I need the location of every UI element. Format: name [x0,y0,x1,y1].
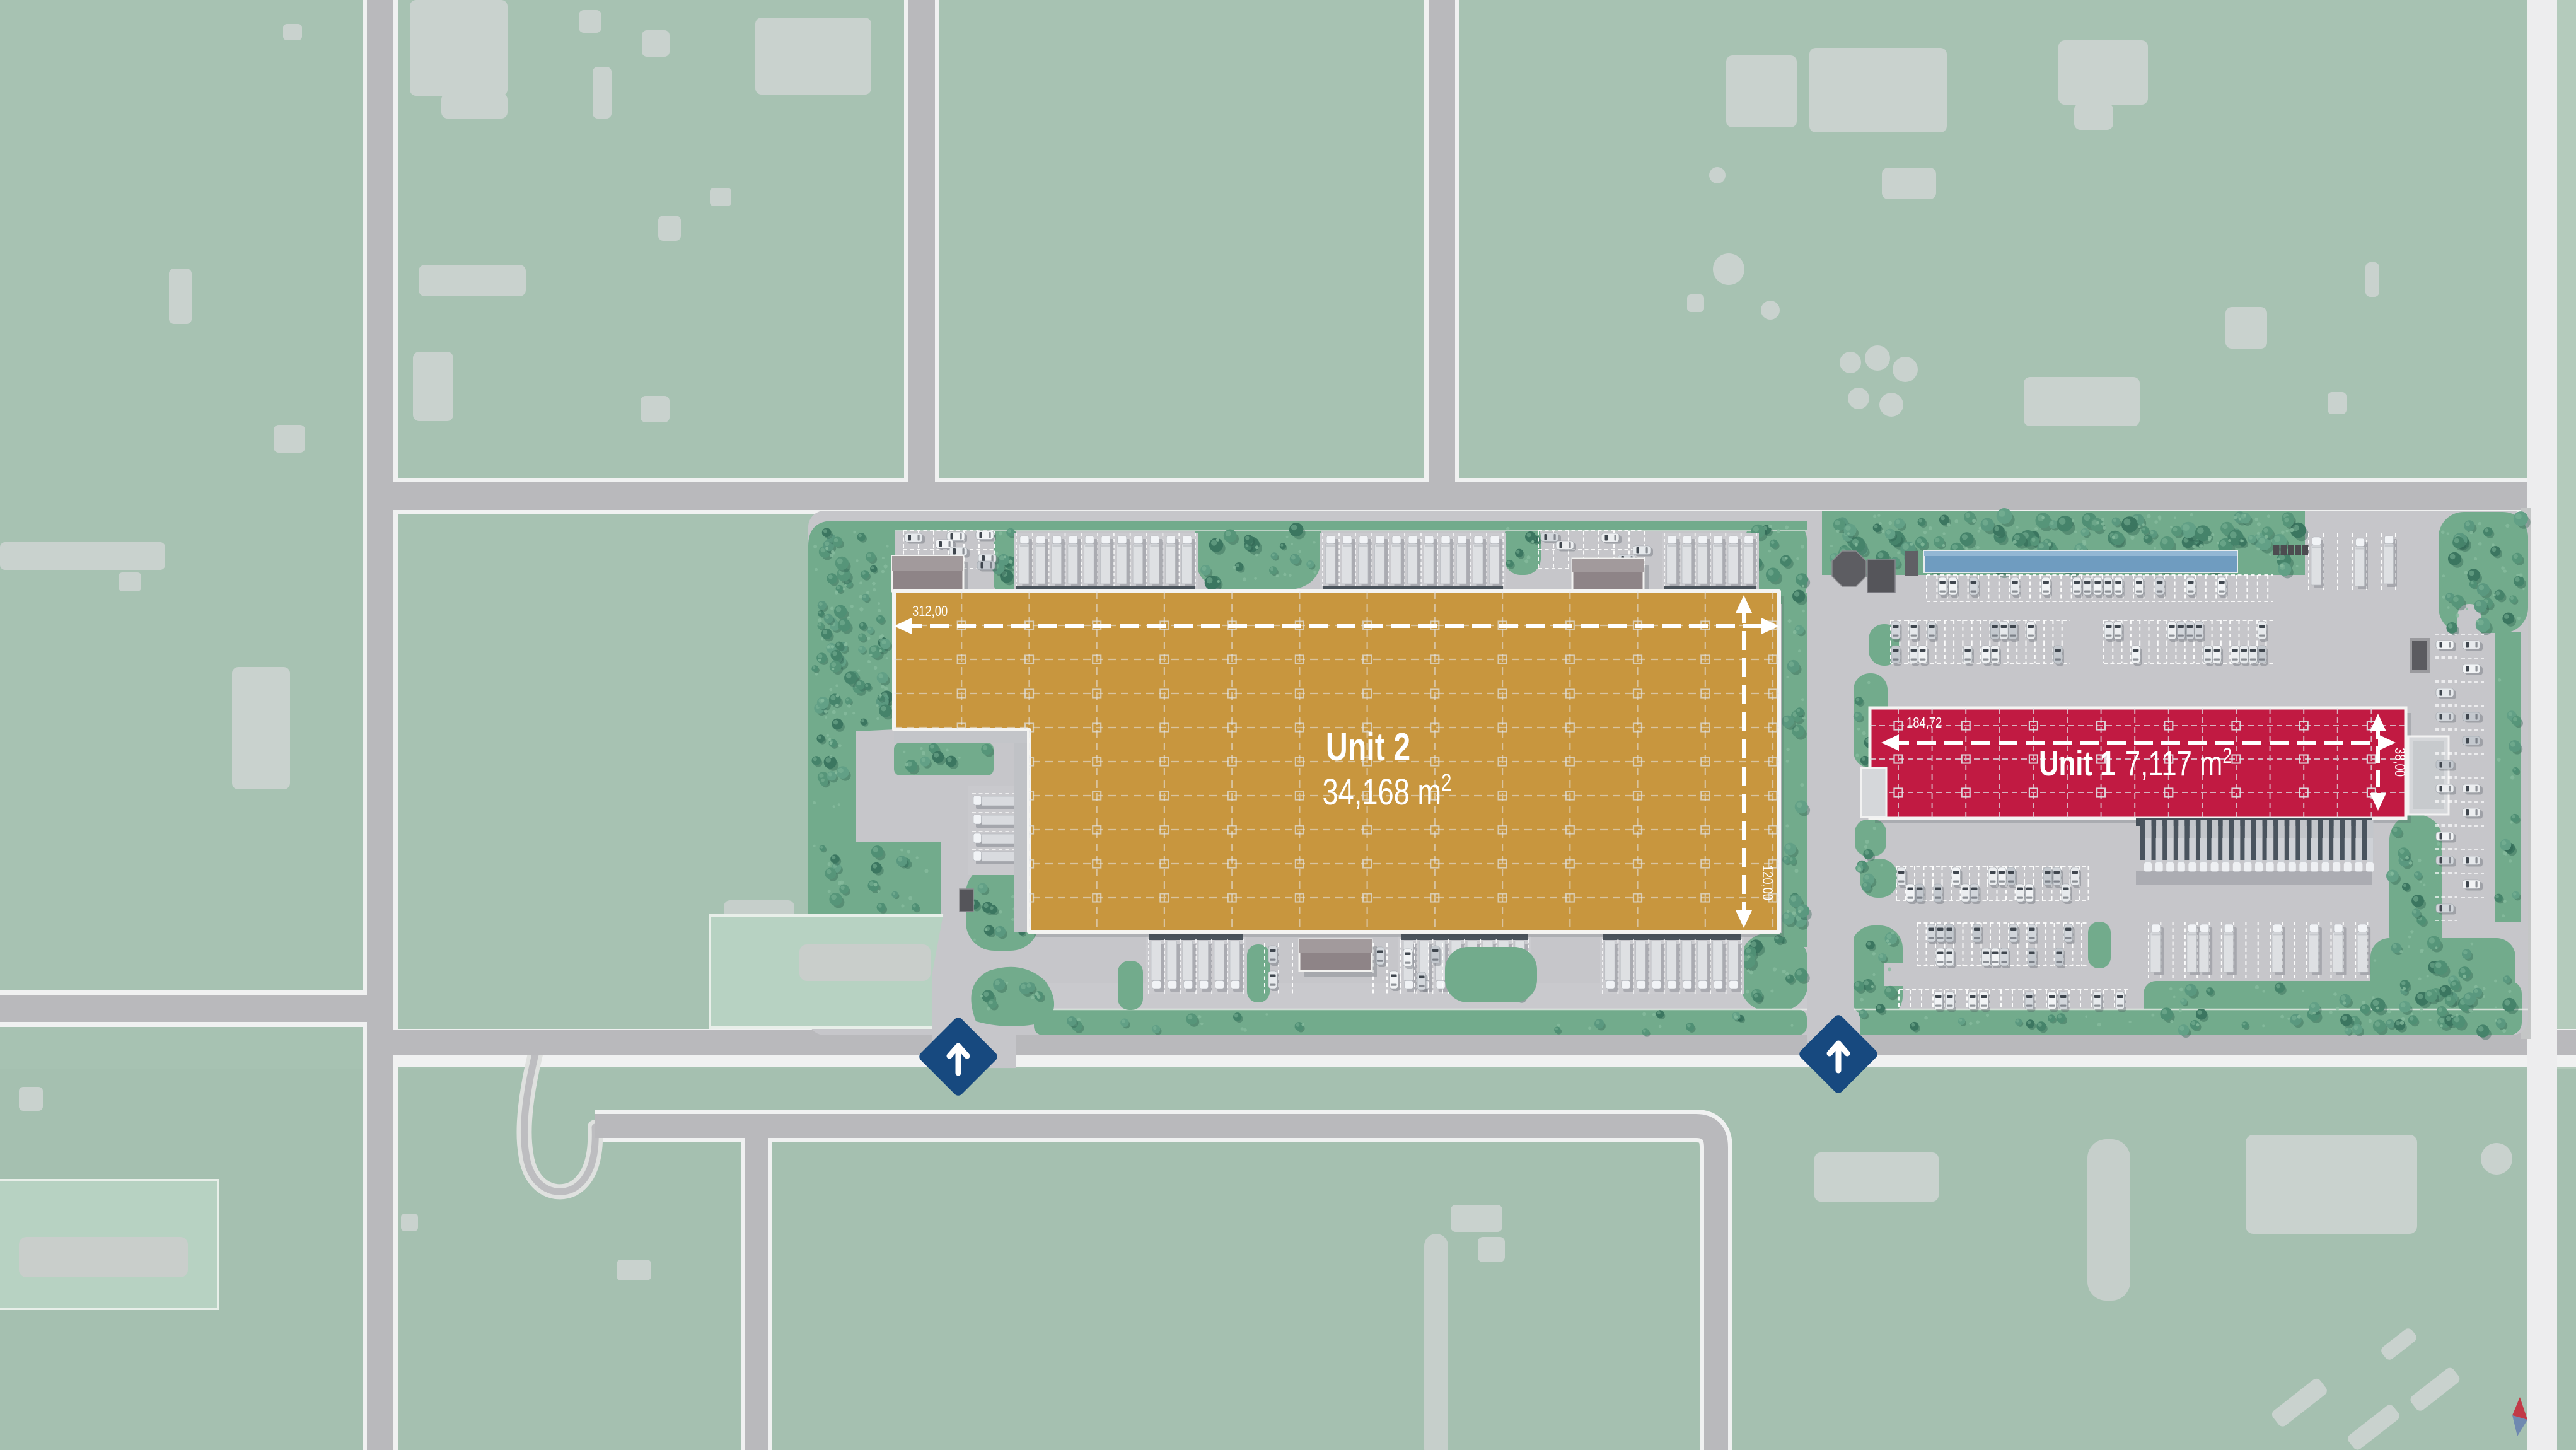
svg-text:Unit 2: Unit 2 [1326,725,1410,768]
svg-text:120,00: 120,00 [1759,865,1775,900]
svg-text:312,00: 312,00 [912,603,948,619]
svg-text:184,72: 184,72 [1906,715,1942,731]
svg-text:38,00: 38,00 [2391,748,2407,777]
svg-text:34,168 m2: 34,168 m2 [1322,770,1451,813]
svg-text:Unit 17,117 m2: Unit 17,117 m2 [2039,744,2232,783]
